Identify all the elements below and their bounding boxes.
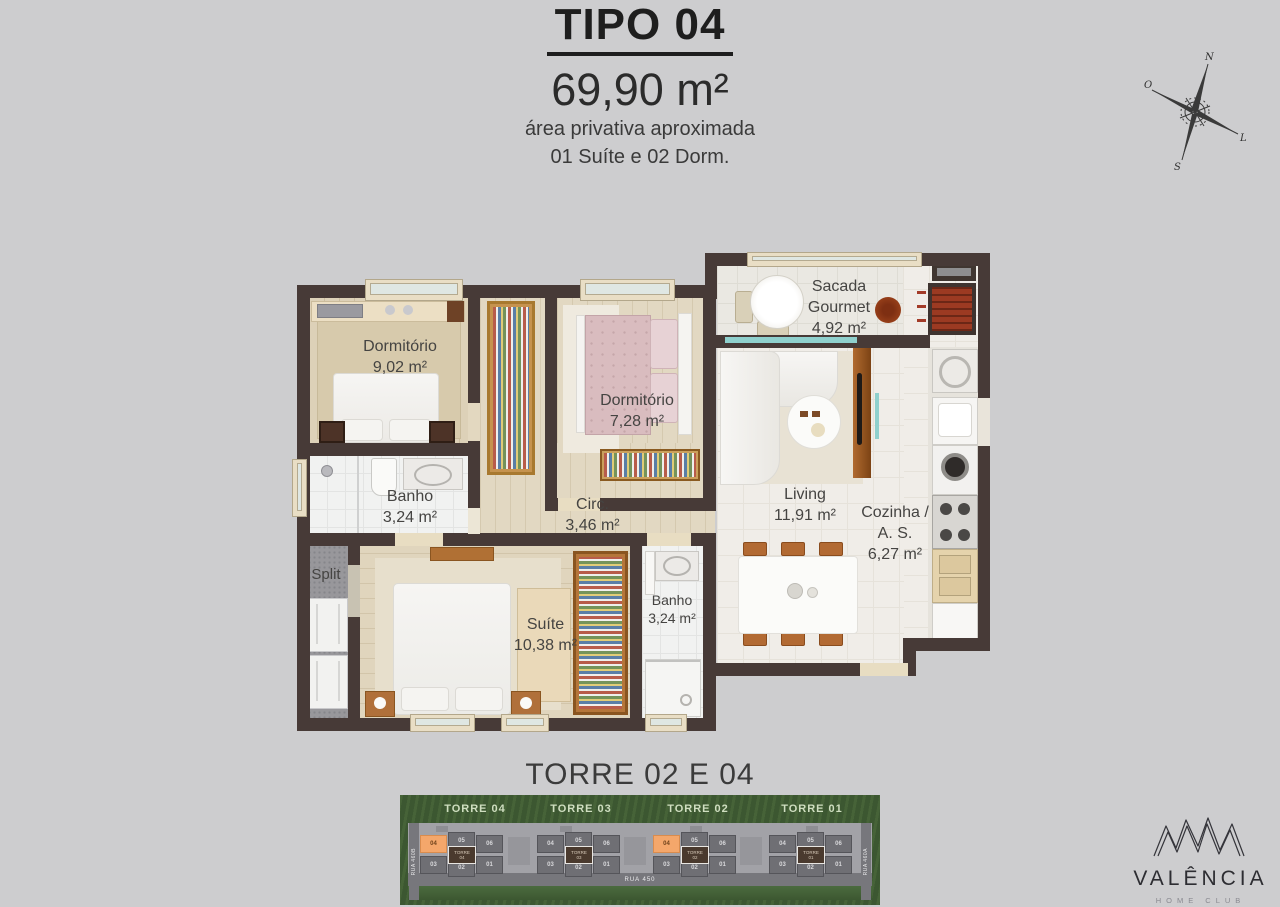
ottoman	[787, 395, 841, 449]
tower-core-03: TORRE 03	[565, 846, 593, 864]
bbq-grill	[928, 283, 976, 335]
compass-s: S	[1174, 162, 1181, 173]
wall	[978, 253, 990, 651]
unit-01: 01	[709, 856, 736, 874]
room-name: Split	[295, 565, 357, 585]
window	[410, 714, 475, 732]
dining-chair	[743, 632, 767, 646]
sofa-chaise	[720, 351, 780, 485]
site-structure	[624, 837, 646, 865]
centerpiece	[807, 587, 818, 598]
room-area: 4,92 m²	[775, 319, 903, 340]
unit-06: 06	[709, 835, 736, 853]
tower-label-03: TORRE 03	[536, 803, 626, 815]
shower	[645, 659, 701, 717]
tower-label-01: TORRE 01	[767, 803, 857, 815]
brand-name: VALÊNCIA	[1128, 867, 1273, 891]
wall	[630, 545, 642, 719]
wall-art	[447, 301, 464, 322]
room-name: Suíte	[483, 615, 608, 636]
wardrobe	[487, 301, 535, 475]
unit-06: 06	[593, 835, 620, 853]
floor-plan: Dormitório 9,02 m² Dormitório 7,28 m² Sa…	[295, 253, 992, 735]
room-area: 7,28 m²	[567, 412, 707, 433]
room-name: Cozinha /	[851, 503, 939, 524]
towers-heading: TORRE 02 E 04	[0, 758, 1280, 792]
room-area: 6,27 m²	[851, 545, 939, 566]
fridge	[932, 603, 978, 639]
nightstand	[365, 691, 395, 717]
washing-machine	[932, 445, 978, 495]
tower-label-02: TORRE 02	[653, 803, 743, 815]
core-line: 02	[692, 855, 697, 860]
decor-bowl	[403, 305, 413, 315]
unit-04: 04	[769, 835, 796, 853]
window	[365, 279, 463, 301]
unit-01: 01	[825, 856, 852, 874]
compass-icon: N O L S	[1142, 48, 1247, 173]
dining-chair	[743, 542, 767, 556]
nightstand	[319, 421, 345, 443]
label-banho-1: Banho 3,24 m²	[350, 487, 470, 529]
door-gap	[860, 663, 908, 676]
label-cozinha: Cozinha / A. S. 6,27 m²	[851, 503, 939, 565]
core-line: 01	[808, 855, 813, 860]
unit-01: 01	[593, 856, 620, 874]
tower-cluster-03: 04 05 06 03 02 01 TORRE 03	[537, 835, 621, 875]
tower-cluster-04: 04 05 06 03 02 01 TORRE 04	[420, 835, 504, 875]
core-line: 03	[576, 855, 581, 860]
tray-item	[800, 411, 808, 417]
window	[747, 252, 922, 267]
core-line: 04	[459, 855, 464, 860]
centerpiece	[787, 583, 803, 599]
window	[292, 459, 307, 517]
unit-04: 04	[537, 835, 564, 853]
sink-counter	[655, 551, 699, 581]
shower-head	[321, 465, 333, 477]
dining-chair	[781, 542, 805, 556]
logo-mark-icon	[1146, 814, 1256, 860]
window	[501, 714, 549, 732]
tower-cluster-01: 04 05 06 03 02 01 TORRE 01	[769, 835, 853, 875]
tower-label-04: TORRE 04	[430, 803, 520, 815]
unit-03: 03	[769, 856, 796, 874]
unit-area: 69,90 m²	[0, 64, 1280, 116]
label-dormitorio-2: Dormitório 7,28 m²	[567, 391, 707, 433]
sink-counter	[403, 458, 463, 490]
pillow	[389, 419, 431, 441]
area-note: área privativa aproximada	[0, 118, 1280, 141]
sink-round	[932, 349, 978, 393]
unit-06: 06	[825, 835, 852, 853]
room-name: Dormitório	[567, 391, 707, 412]
page-title: TIPO 04	[547, 0, 734, 56]
ac-unit	[308, 655, 348, 709]
window	[580, 279, 675, 301]
header: TIPO 04 69,90 m² área privativa aproxima…	[0, 0, 1280, 169]
pillow	[455, 687, 503, 711]
room-name: Banho	[350, 487, 470, 508]
shelf	[430, 547, 494, 561]
dining-chair	[819, 542, 843, 556]
street-bottom-label: RUA 450	[624, 877, 655, 883]
pillow	[341, 419, 383, 441]
bbq-mark	[917, 319, 926, 322]
glass-partition	[875, 393, 879, 439]
site-structure	[508, 837, 530, 865]
nightstand	[429, 421, 455, 443]
wall	[297, 443, 480, 456]
room-name: Dormitório	[325, 337, 475, 358]
room-name: Gourmet	[775, 298, 903, 319]
brand-tagline: HOME CLUB	[1128, 896, 1273, 905]
label-split: Split	[295, 565, 357, 585]
compass-l: L	[1239, 133, 1247, 144]
compass-o: O	[1144, 80, 1152, 91]
room-name: A. S.	[851, 524, 939, 545]
site-structure	[436, 826, 448, 832]
tower-core-02: TORRE 02	[681, 846, 709, 864]
door-gap	[978, 398, 990, 446]
tv	[857, 373, 862, 445]
room-name: Banho	[637, 591, 707, 609]
room-area: 3,46 m²	[530, 516, 655, 537]
wall	[545, 297, 557, 511]
bbq-mark	[917, 305, 926, 308]
room-area: 9,02 m²	[325, 358, 475, 379]
unit-03: 03	[420, 856, 447, 874]
pillow	[401, 687, 449, 711]
unit-04: 04	[653, 835, 680, 853]
wall	[705, 253, 717, 299]
room-name: Sacada	[775, 277, 903, 298]
street-left: RUA 460B	[409, 823, 419, 900]
unit-04: 04	[420, 835, 447, 853]
bbq-mark	[917, 291, 926, 294]
label-suite: Suíte 10,38 m²	[483, 615, 608, 657]
clothes-rack	[600, 449, 700, 481]
pillow	[650, 319, 678, 369]
street-left-label: RUA 460B	[411, 848, 417, 875]
room-name: Circ.	[530, 495, 655, 516]
bath-shelf	[645, 551, 655, 595]
laptop	[317, 304, 363, 318]
compass-n: N	[1204, 52, 1215, 63]
dining-chair	[781, 632, 805, 646]
room-area: 3,24 m²	[637, 609, 707, 627]
rooms-note: 01 Suíte e 02 Dorm.	[0, 146, 1280, 169]
label-sacada: Sacada Gourmet 4,92 m²	[775, 277, 903, 339]
unit-03: 03	[653, 856, 680, 874]
street-right-label: RUA 460A	[863, 848, 869, 875]
decor-bowl	[385, 305, 395, 315]
room-area: 3,24 m²	[350, 508, 470, 529]
label-banho-2: Banho 3,24 m²	[637, 591, 707, 627]
door-gap	[468, 403, 480, 441]
laundry-tub	[932, 397, 978, 445]
tv-panel	[853, 348, 871, 478]
tower-cluster-02: 04 05 06 03 02 01 TORRE 02	[653, 835, 737, 875]
ac-unit	[308, 598, 348, 652]
tray-bowl	[811, 423, 825, 437]
room-area: 10,38 m²	[483, 636, 608, 657]
window	[645, 714, 687, 732]
unit-03: 03	[537, 856, 564, 874]
label-dormitorio-1: Dormitório 9,02 m²	[325, 337, 475, 379]
wall	[703, 545, 716, 731]
site-structure	[740, 837, 762, 865]
floorplan-page: TIPO 04 69,90 m² área privativa aproxima…	[0, 0, 1280, 907]
site-plan: TORRE 04 TORRE 03 TORRE 02 TORRE 01 RUA …	[400, 795, 880, 905]
unit-06: 06	[476, 835, 503, 853]
wall	[903, 638, 990, 651]
balcony-cabinet	[932, 265, 976, 281]
tower-core-01: TORRE 01	[797, 846, 825, 864]
label-circulacao: Circ. 3,46 m²	[530, 495, 655, 537]
brand-logo: VALÊNCIA HOME CLUB	[1128, 814, 1273, 905]
tower-core-04: TORRE 04	[448, 846, 476, 864]
dining-chair	[819, 632, 843, 646]
door-gap	[395, 533, 443, 546]
site-grass	[408, 886, 872, 900]
tray-item	[812, 411, 820, 417]
street-right: RUA 460A	[861, 823, 871, 900]
unit-01: 01	[476, 856, 503, 874]
